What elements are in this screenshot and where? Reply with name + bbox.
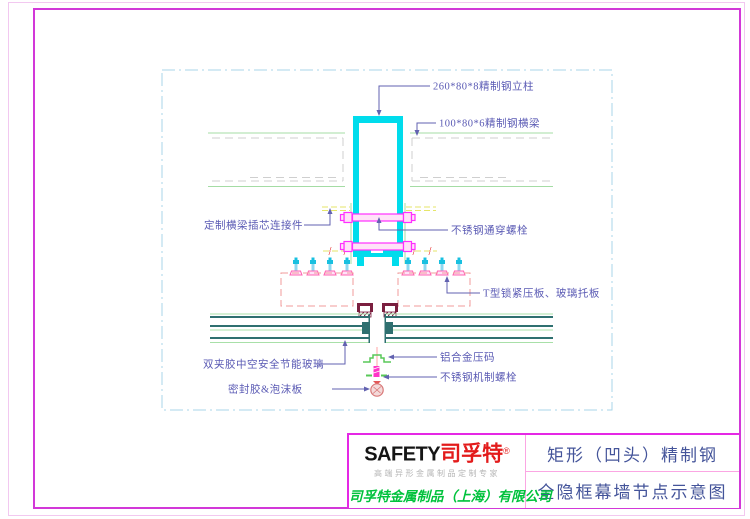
label-through-bolt: 不锈钢通穿螺栓 [451,224,528,237]
drawing-title: 全隐框幕墙节点示意图 [526,472,739,508]
t-lock-bolts [290,258,465,276]
registered-mark: ® [503,446,510,456]
title-block-brand-cell: SAFETY司孚特® 高端异形金属制品定制专家 司孚特金属制品（上海）有限公司 [349,435,525,508]
glass-panels [210,314,553,343]
label-beam: 100*80*6精制钢横梁 [439,117,540,130]
title-block: SAFETY司孚特® 高端异形金属制品定制专家 司孚特金属制品（上海）有限公司 … [347,433,739,508]
label-connector: 定制横梁插芯连接件 [204,219,303,232]
label-t-plate: T型锁紧压板、玻璃托板 [483,287,600,300]
t-plate-dashed-outline [281,273,470,306]
glass-clips [357,303,398,317]
leader-lines [304,86,480,392]
brand-tagline: 高端异形金属制品定制专家 [349,468,525,479]
product-title: 矩形（凹头）精制钢 [526,435,739,472]
label-sealant: 密封胶&泡沫板 [228,383,303,396]
brand-name-en: SAFETY [364,443,440,465]
beam-section-lines [208,133,553,187]
company-name: 司孚特金属制品（上海）有限公司 [349,485,525,505]
label-machine-bolt: 不锈钢机制螺栓 [440,371,517,384]
label-pressure-block: 铝合金压码 [440,351,495,364]
brand-logo: SAFETY司孚特® [349,440,525,467]
brand-name-cn: 司孚特 [440,442,503,465]
title-block-title-cell: 矩形（凹头）精制钢 全隐框幕墙节点示意图 [525,435,739,508]
through-bolts [341,213,416,252]
label-column: 260*80*8精制钢立柱 [433,80,534,93]
label-glass: 双夹胶中空安全节能玻璃 [203,358,324,371]
